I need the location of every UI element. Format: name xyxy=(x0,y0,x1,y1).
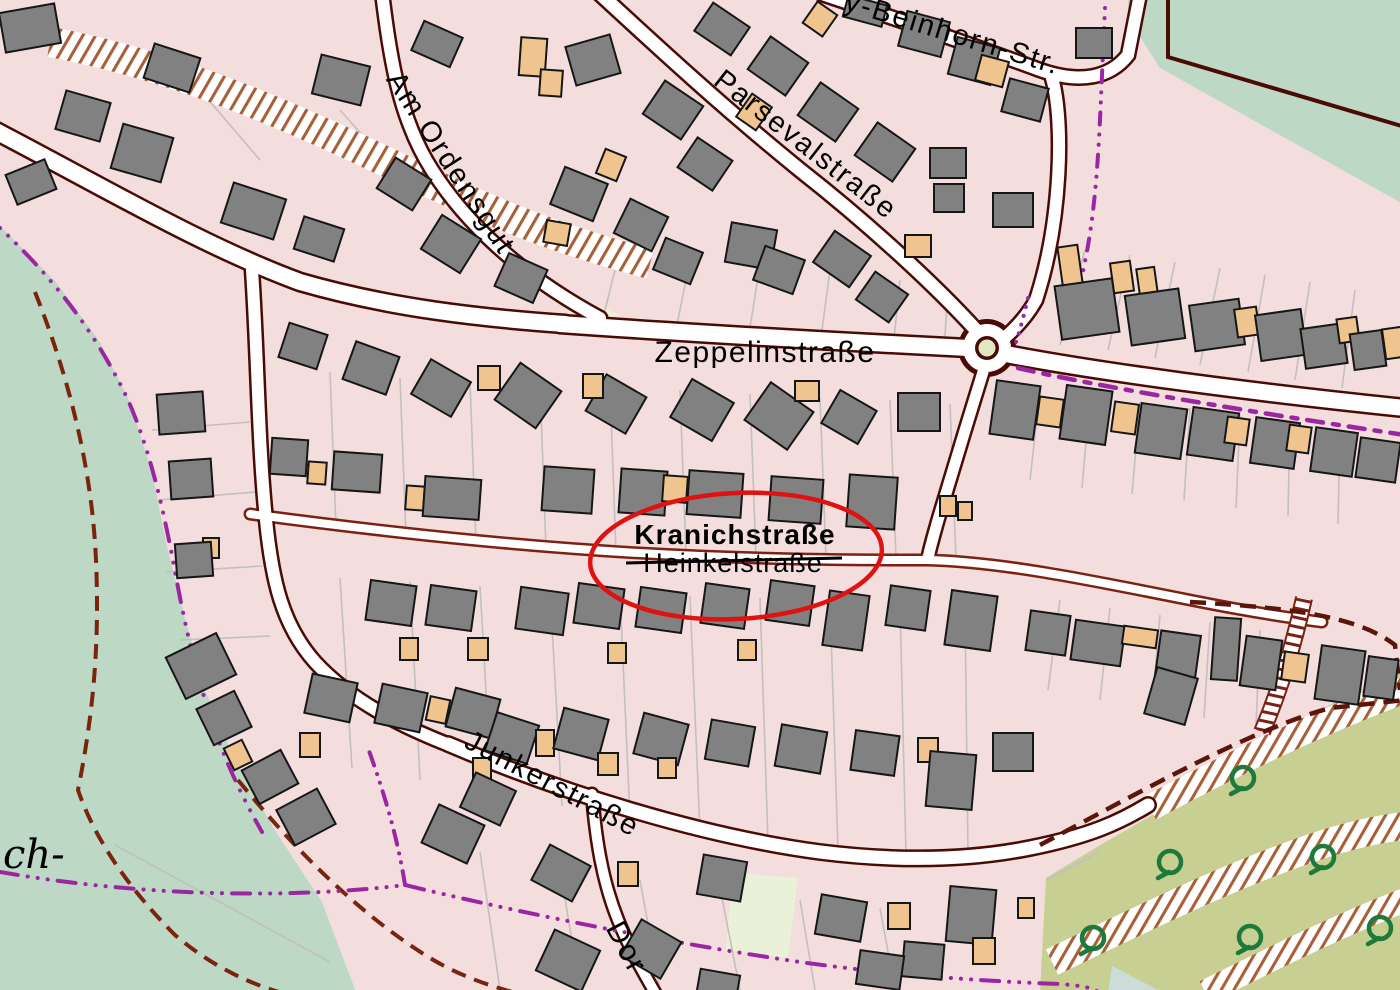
building xyxy=(934,184,964,212)
building xyxy=(850,730,899,776)
outbuilding xyxy=(1122,626,1158,649)
outbuilding xyxy=(543,220,570,246)
building xyxy=(1350,330,1387,370)
outbuilding xyxy=(307,461,326,484)
outbuilding xyxy=(300,733,320,757)
building xyxy=(425,585,476,631)
building xyxy=(332,451,383,492)
building xyxy=(1025,610,1070,655)
building xyxy=(1255,309,1307,361)
building xyxy=(856,950,904,990)
building xyxy=(846,474,898,529)
building xyxy=(1240,636,1283,691)
building xyxy=(885,585,930,630)
outbuilding xyxy=(1281,651,1309,682)
building xyxy=(700,583,749,629)
street-label: Zeppelinstraße xyxy=(654,336,875,369)
outbuilding xyxy=(405,485,425,510)
building xyxy=(944,590,997,651)
building xyxy=(775,724,828,773)
outbuilding xyxy=(536,730,554,756)
outbuilding xyxy=(958,502,972,520)
outbuilding xyxy=(738,640,756,660)
outbuilding xyxy=(618,862,638,886)
building xyxy=(515,587,568,635)
building xyxy=(993,733,1033,771)
building xyxy=(1135,403,1188,459)
outbuilding xyxy=(905,235,931,257)
outbuilding xyxy=(973,938,995,964)
building xyxy=(1314,645,1365,705)
building xyxy=(573,583,624,629)
outbuilding xyxy=(795,381,819,401)
outbuilding xyxy=(1110,261,1134,293)
building xyxy=(705,719,755,766)
building xyxy=(697,854,747,901)
outbuilding xyxy=(539,69,563,96)
building xyxy=(423,476,482,520)
outbuilding xyxy=(1036,396,1064,427)
outbuilding xyxy=(1382,327,1400,359)
building xyxy=(1076,28,1112,58)
map-viewport[interactable]: ZeppelinstraßeParsevalstraßeAm Ordensgut… xyxy=(0,0,1400,990)
building xyxy=(542,466,595,513)
building xyxy=(1070,620,1125,667)
building xyxy=(1125,288,1185,345)
building xyxy=(169,459,214,500)
building xyxy=(815,894,867,941)
building xyxy=(902,941,945,979)
outbuilding xyxy=(478,366,500,390)
building xyxy=(374,684,427,733)
building xyxy=(989,380,1040,440)
building xyxy=(1059,385,1112,445)
map-svg: ZeppelinstraßeParsevalstraßeAm Ordensgut… xyxy=(0,0,1400,990)
building xyxy=(926,751,977,810)
outbuilding xyxy=(1057,245,1082,285)
building xyxy=(619,468,668,515)
outbuilding xyxy=(400,638,418,660)
building xyxy=(898,393,940,431)
building xyxy=(946,886,997,945)
building xyxy=(1355,437,1400,482)
outbuilding xyxy=(940,496,956,516)
partial-place-label: ch- xyxy=(3,832,65,878)
building xyxy=(304,674,357,723)
building xyxy=(157,391,206,434)
building xyxy=(0,3,61,52)
outbuilding xyxy=(1286,425,1311,454)
building xyxy=(993,193,1033,227)
building xyxy=(765,580,814,626)
building xyxy=(1363,656,1398,700)
building xyxy=(175,542,213,578)
outbuilding xyxy=(468,638,488,660)
outbuilding xyxy=(658,758,676,778)
outbuilding xyxy=(1111,401,1139,434)
outbuilding xyxy=(1018,898,1034,918)
building xyxy=(365,580,416,626)
building xyxy=(1310,427,1358,476)
outbuilding xyxy=(888,903,910,929)
new-street-name-label: Kranichstraße xyxy=(634,519,835,550)
building xyxy=(270,438,308,476)
outbuilding xyxy=(608,643,626,663)
roundabout-island xyxy=(979,340,996,357)
outbuilding xyxy=(598,753,618,775)
building xyxy=(1055,278,1120,340)
outbuilding xyxy=(583,374,603,398)
building xyxy=(930,148,966,178)
building xyxy=(1211,617,1241,681)
outbuilding xyxy=(1224,417,1249,446)
